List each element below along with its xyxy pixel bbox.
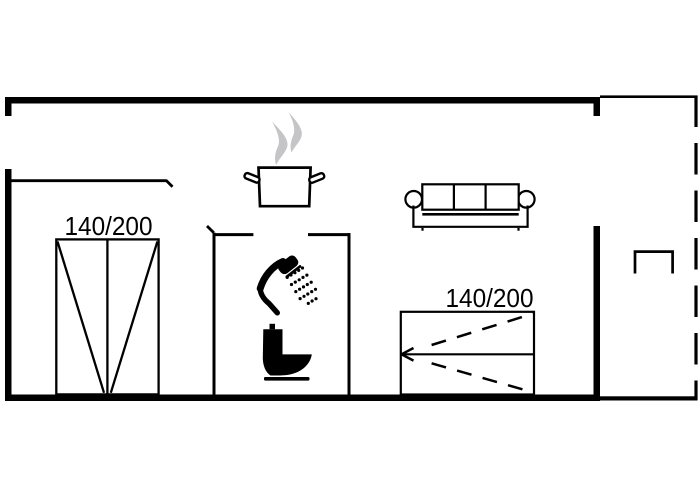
svg-text:140/200: 140/200 <box>65 211 153 241</box>
svg-text:140/200: 140/200 <box>446 283 534 313</box>
